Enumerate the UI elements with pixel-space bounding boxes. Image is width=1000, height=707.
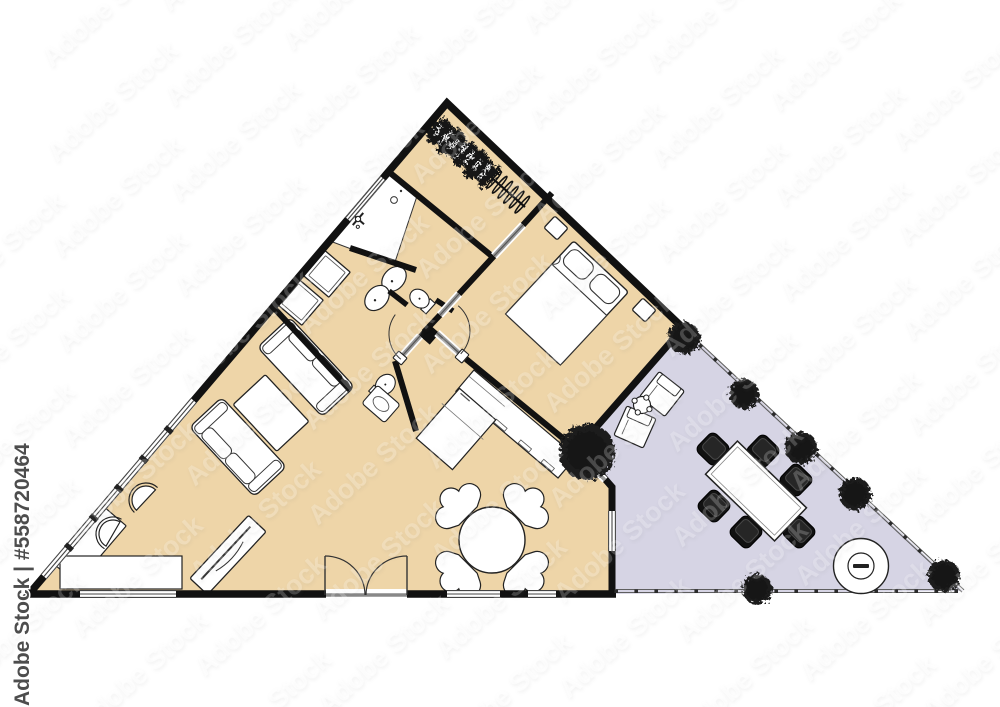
- svg-text:Adobe Stock | #558720464: Adobe Stock | #558720464: [11, 443, 34, 706]
- svg-text:Adobe Stock: Adobe Stock: [887, 22, 1000, 155]
